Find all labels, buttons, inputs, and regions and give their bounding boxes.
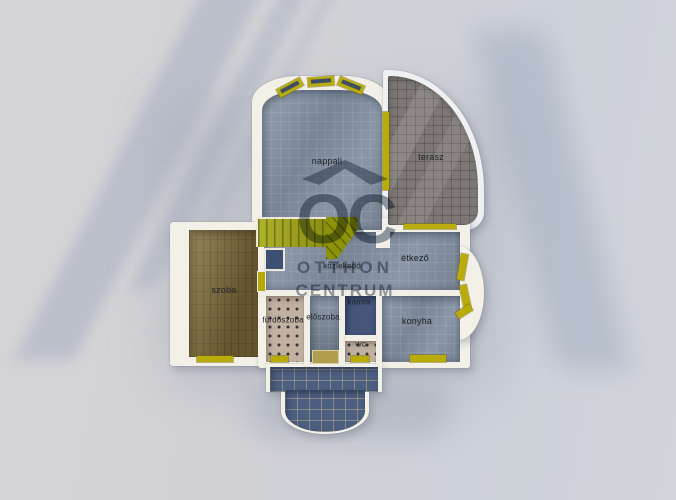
bedroom-door <box>257 271 266 292</box>
watermark-line2: CENTRUM <box>278 281 412 301</box>
room-label-etkezo: étkező <box>401 253 429 263</box>
room-label-furdoszoba: fürdőszoba <box>262 316 304 325</box>
room-label-eloszoba: előszoba <box>306 313 340 322</box>
bathroom-window-sill <box>271 356 288 362</box>
entry-door-mat <box>312 350 339 364</box>
bay-window <box>308 76 335 87</box>
room-label-terasz: terasz <box>418 152 444 162</box>
room-label-kamra: kamra <box>347 298 370 307</box>
window-glass <box>311 78 331 83</box>
room-label-konyha: konyha <box>402 316 432 326</box>
porch-semicircle-floor <box>285 390 365 432</box>
room-label-szoba: szoba <box>211 285 236 295</box>
wc-window-sill <box>351 356 369 362</box>
watermark: OC OTTHON CENTRUM <box>278 158 412 340</box>
room-label-nappali: nappali <box>312 156 342 166</box>
bedroom-window-sill <box>197 356 233 362</box>
watermark-monogram: OC <box>278 185 412 254</box>
kitchen-window-sill <box>410 355 446 362</box>
floorplan-render: OC OTTHON CENTRUM nappali terasz szoba k… <box>0 0 676 500</box>
room-label-wc: WC <box>355 342 366 349</box>
porch-floor <box>270 367 378 392</box>
room-label-kozlekedo: közlekedő <box>323 262 361 271</box>
